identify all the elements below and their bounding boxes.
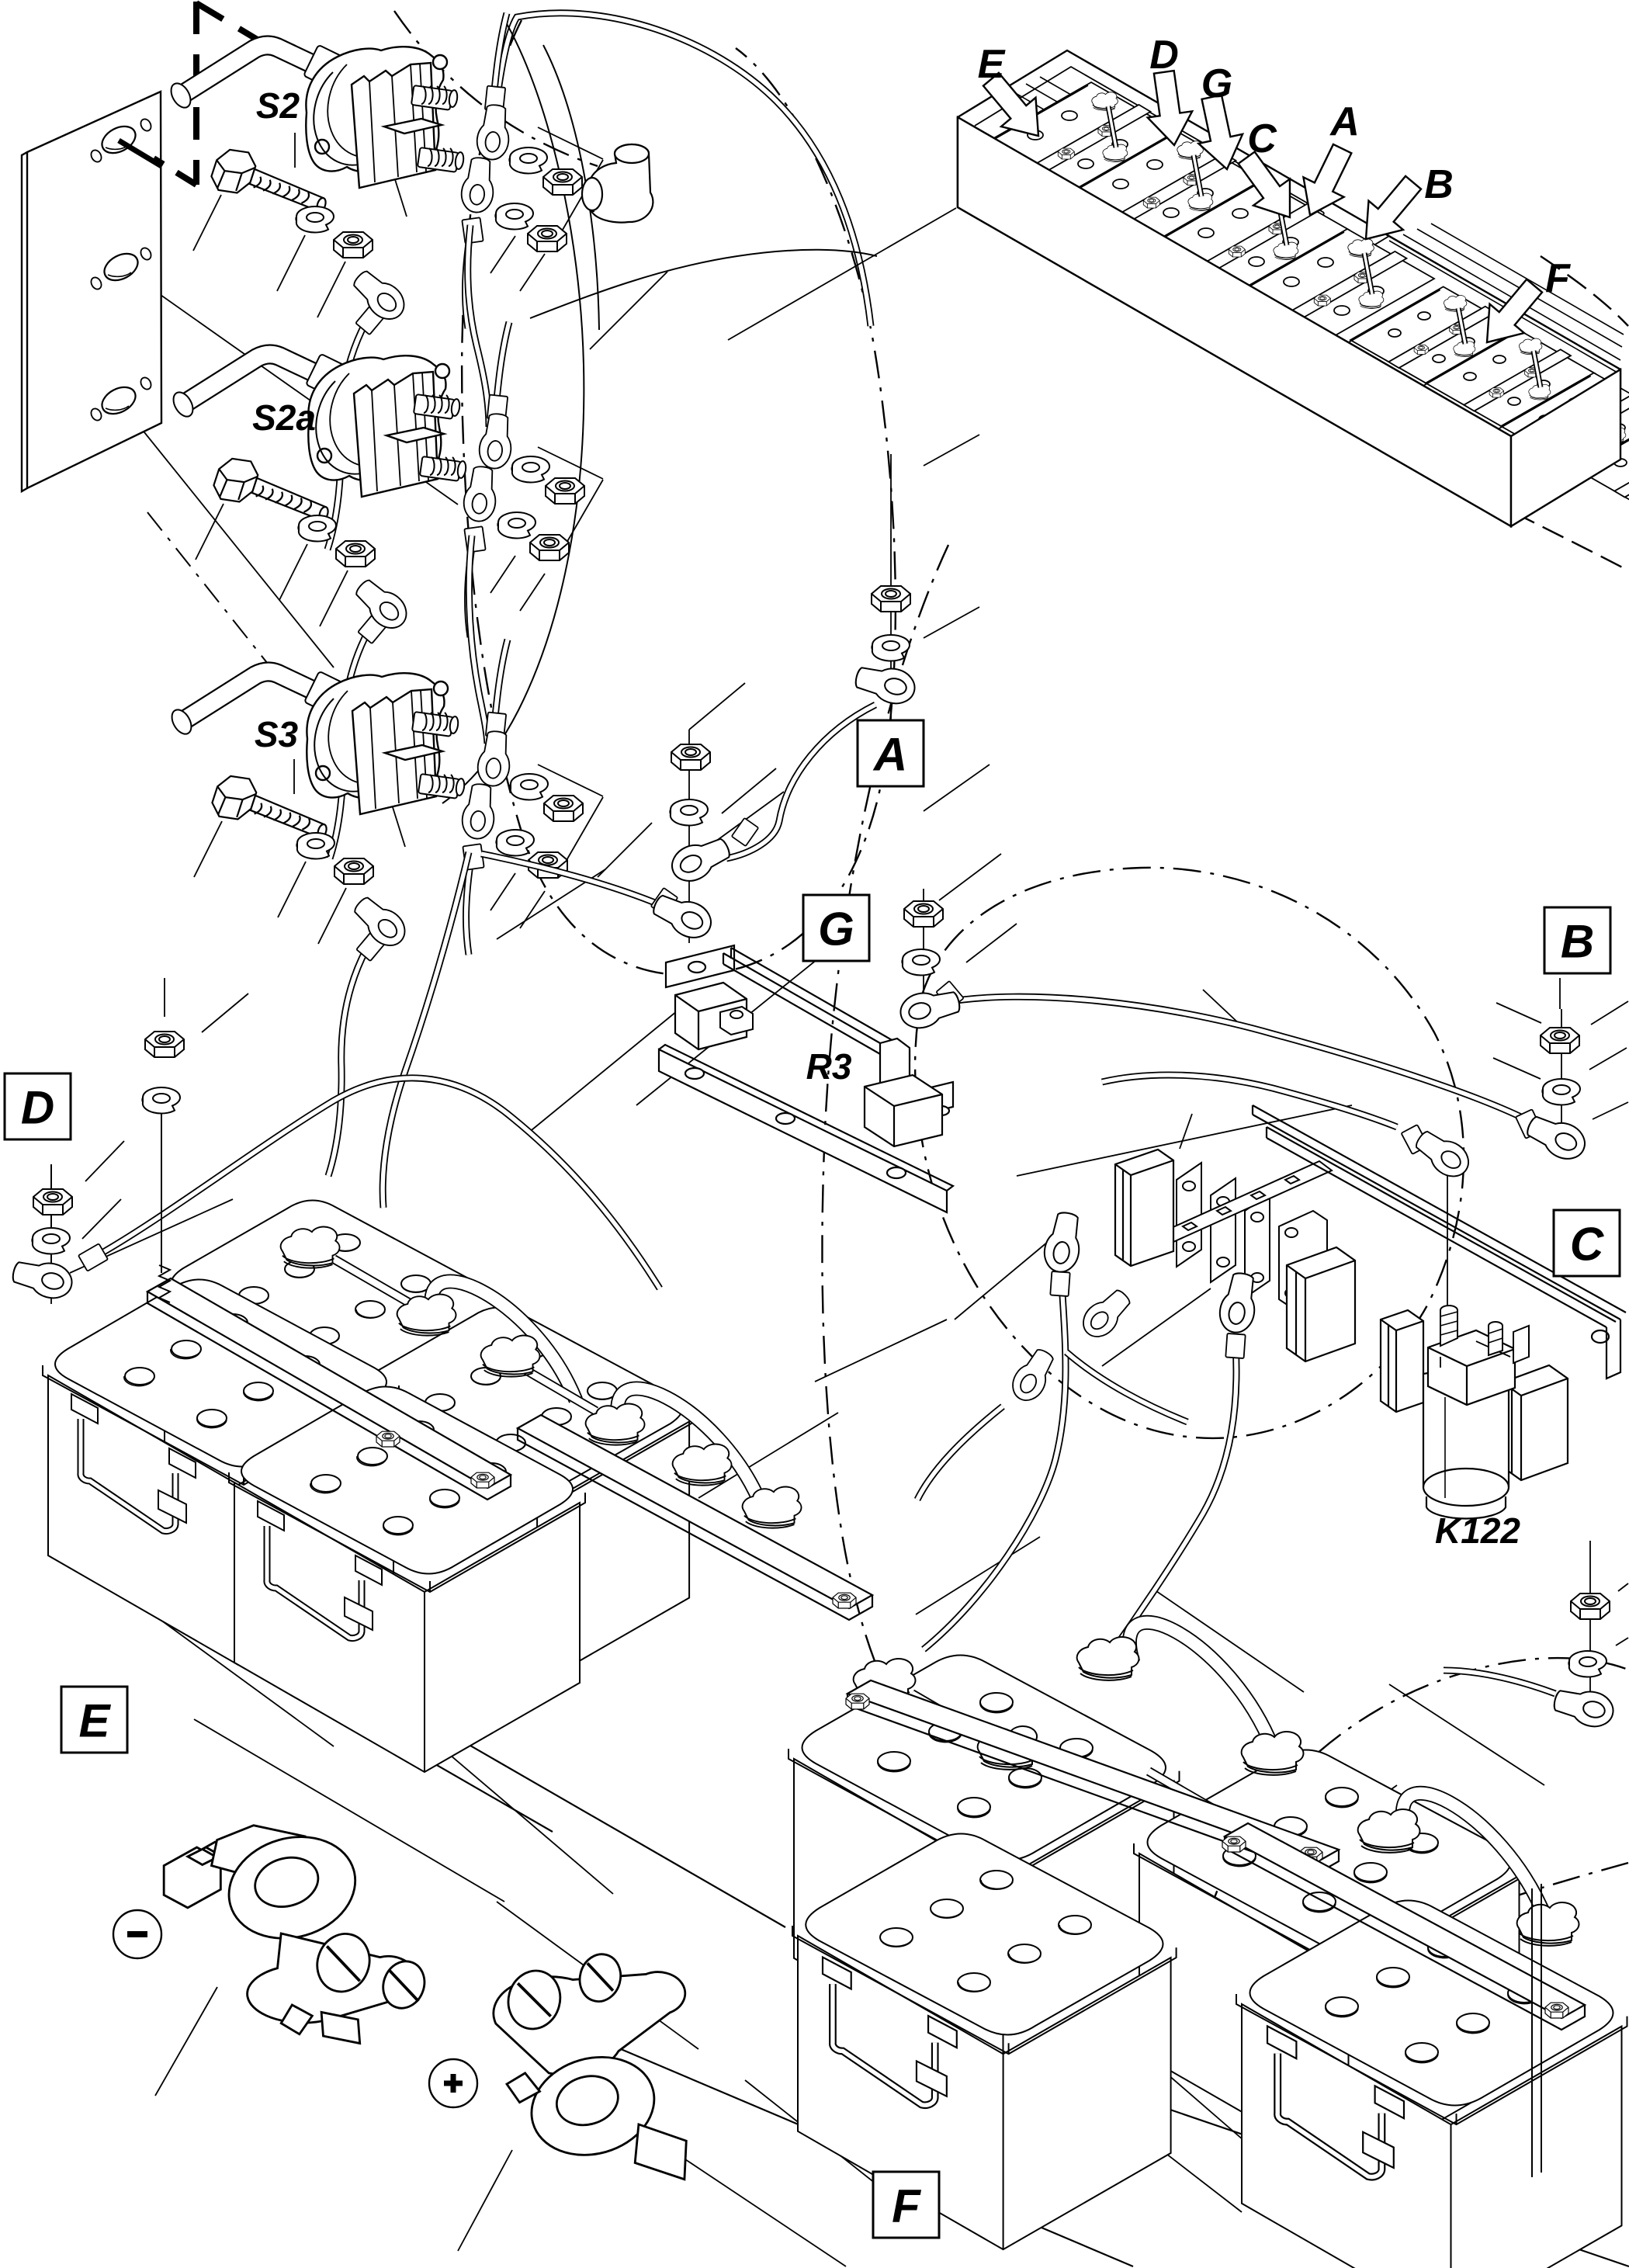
- svg-text:A: A: [1329, 99, 1360, 144]
- svg-text:S2a: S2a: [252, 397, 316, 438]
- svg-text:S3: S3: [255, 714, 299, 754]
- svg-text:G: G: [818, 903, 854, 955]
- svg-text:S2: S2: [256, 85, 300, 126]
- svg-text:B: B: [1424, 162, 1454, 207]
- svg-text:G: G: [1201, 61, 1232, 106]
- svg-text:B: B: [1561, 916, 1594, 968]
- svg-text:F: F: [892, 2180, 921, 2232]
- svg-text:D: D: [21, 1082, 54, 1134]
- svg-text:K122: K122: [1435, 1510, 1520, 1551]
- svg-text:R3: R3: [806, 1046, 852, 1087]
- svg-text:C: C: [1570, 1219, 1605, 1271]
- svg-text:D: D: [1149, 33, 1179, 78]
- svg-text:A: A: [872, 729, 907, 781]
- svg-text:E: E: [978, 42, 1006, 87]
- svg-text:C: C: [1247, 116, 1277, 161]
- svg-text:E: E: [78, 1695, 111, 1747]
- svg-text:F: F: [1545, 256, 1571, 301]
